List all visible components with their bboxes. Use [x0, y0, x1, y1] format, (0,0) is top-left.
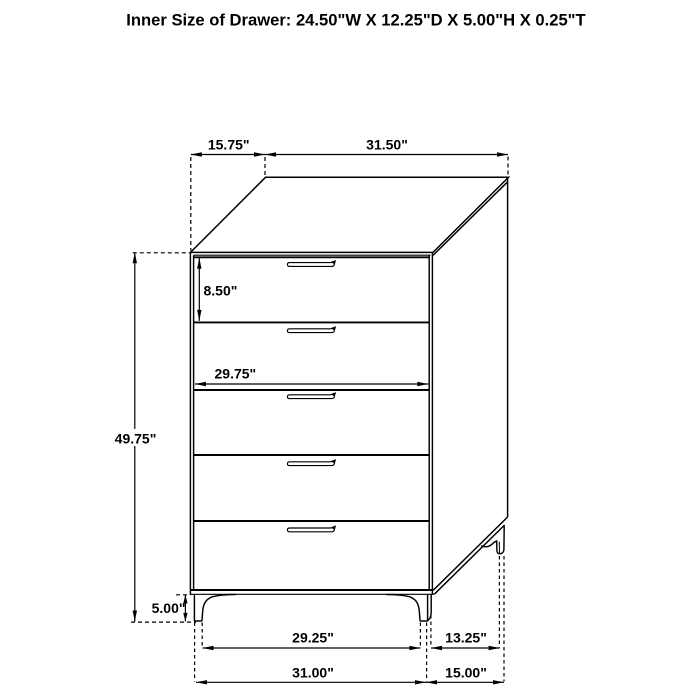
svg-text:15.00": 15.00" [445, 665, 487, 681]
svg-text:5.00": 5.00" [152, 600, 186, 616]
svg-text:31.00": 31.00" [292, 665, 334, 681]
svg-text:13.25": 13.25" [445, 630, 487, 646]
svg-text:Inner Size of Drawer: 24.50"W: Inner Size of Drawer: 24.50"W X 12.25"D … [126, 11, 585, 30]
svg-text:31.50": 31.50" [366, 137, 408, 153]
svg-text:15.75": 15.75" [208, 137, 250, 153]
svg-text:8.50": 8.50" [204, 283, 238, 299]
svg-text:29.75": 29.75" [215, 366, 257, 382]
svg-text:29.25": 29.25" [292, 630, 334, 646]
svg-text:49.75": 49.75" [115, 431, 157, 447]
